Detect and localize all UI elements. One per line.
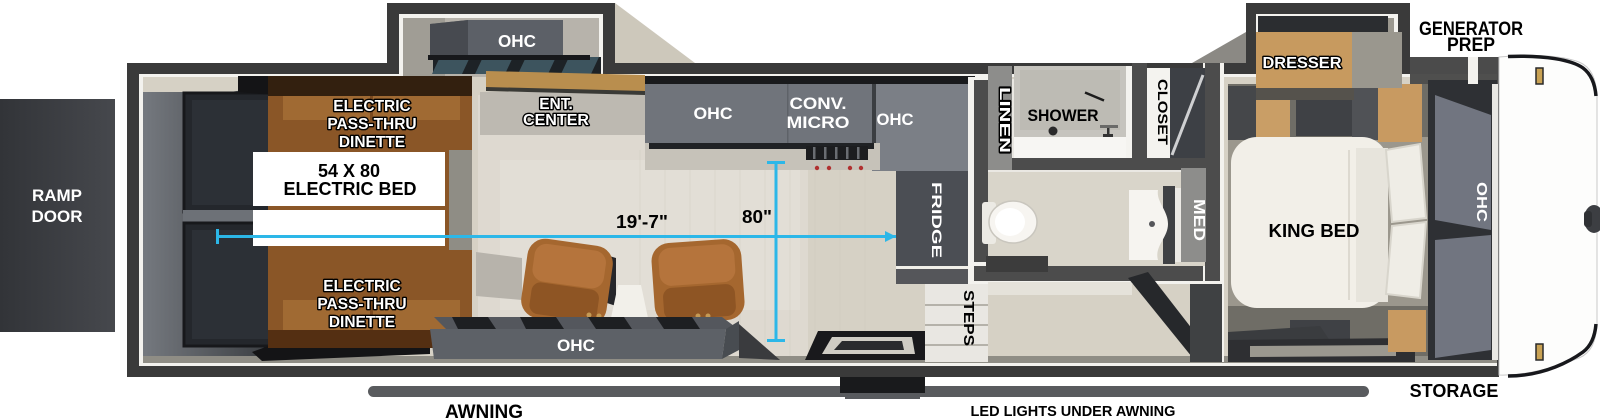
svg-text:LED LIGHTS UNDER AWNING: LED LIGHTS UNDER AWNING xyxy=(971,404,1176,419)
svg-text:19'-7": 19'-7" xyxy=(616,212,668,232)
svg-text:DINETTE: DINETTE xyxy=(329,314,395,331)
svg-text:PREP: PREP xyxy=(1447,35,1495,56)
svg-text:DINETTE: DINETTE xyxy=(339,134,405,151)
svg-text:SHOWER: SHOWER xyxy=(1028,106,1099,125)
svg-text:FRIDGE: FRIDGE xyxy=(929,182,945,258)
svg-text:CENTER: CENTER xyxy=(523,112,589,129)
svg-text:CONV.: CONV. xyxy=(790,95,847,113)
svg-text:ELECTRIC: ELECTRIC xyxy=(333,98,411,115)
svg-text:OHC: OHC xyxy=(557,336,595,355)
svg-text:ELECTRIC BED: ELECTRIC BED xyxy=(283,179,416,199)
svg-text:MICRO: MICRO xyxy=(787,114,850,132)
svg-text:LINEN: LINEN xyxy=(996,87,1013,153)
svg-text:54 X 80: 54 X 80 xyxy=(318,161,380,181)
svg-text:80": 80" xyxy=(742,207,772,227)
svg-text:RAMP: RAMP xyxy=(32,186,82,205)
svg-text:PASS-THRU: PASS-THRU xyxy=(327,116,416,133)
svg-text:STORAGE: STORAGE xyxy=(1410,381,1499,401)
svg-text:ELECTRIC: ELECTRIC xyxy=(323,278,401,295)
svg-text:CLOSET: CLOSET xyxy=(1155,79,1171,146)
svg-text:STEPS: STEPS xyxy=(960,290,977,346)
svg-text:PASS-THRU: PASS-THRU xyxy=(317,296,406,313)
svg-text:ENT.: ENT. xyxy=(539,96,573,113)
svg-text:DOOR: DOOR xyxy=(32,207,83,226)
svg-text:MED: MED xyxy=(1190,199,1207,241)
svg-text:DRESSER: DRESSER xyxy=(1263,55,1342,72)
svg-text:AWNING: AWNING xyxy=(445,402,523,419)
svg-text:OHC: OHC xyxy=(1473,182,1490,222)
svg-text:OHC: OHC xyxy=(498,31,536,51)
svg-text:KING BED: KING BED xyxy=(1269,221,1360,241)
svg-text:OHC: OHC xyxy=(877,111,914,129)
svg-text:OHC: OHC xyxy=(694,105,733,123)
